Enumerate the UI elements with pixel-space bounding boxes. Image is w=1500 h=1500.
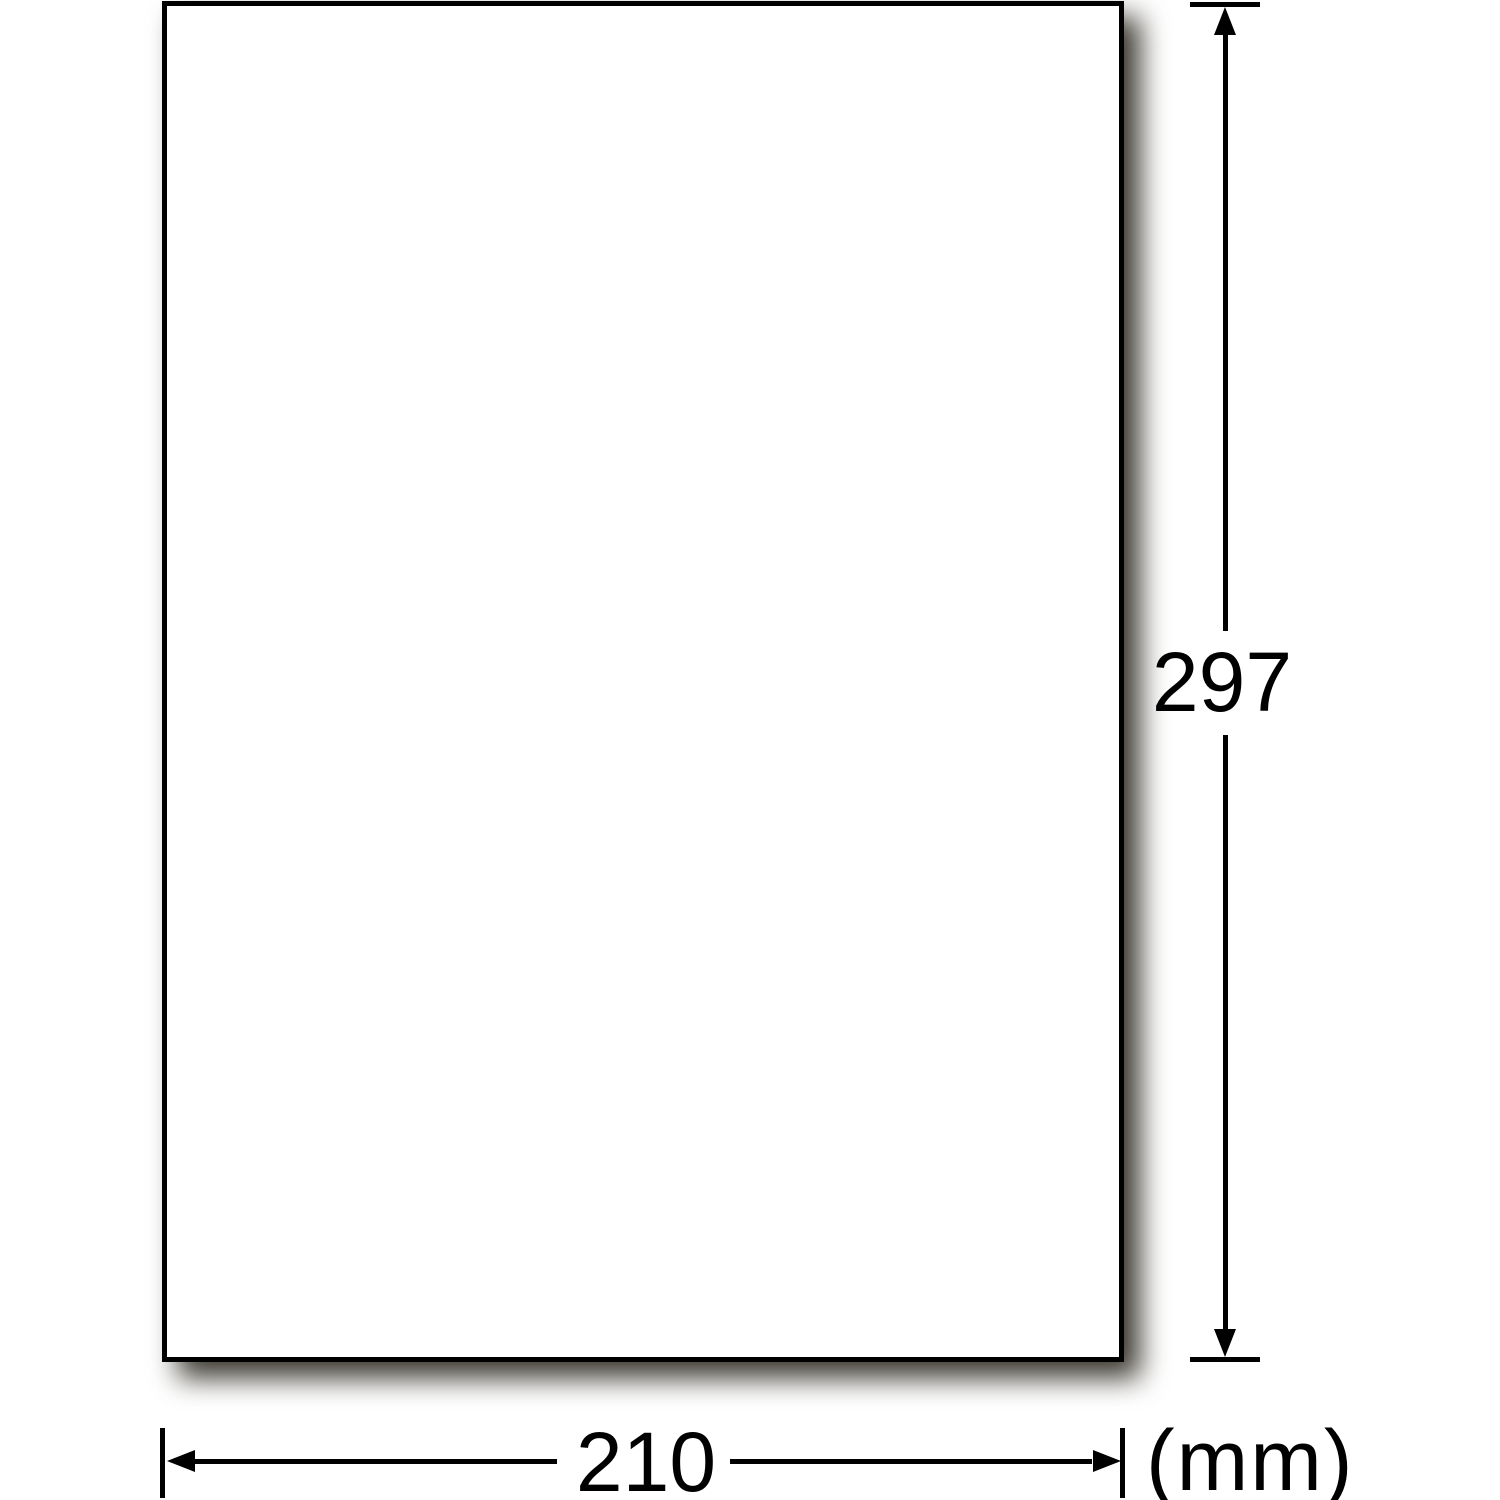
height-bottom-tick	[1190, 1357, 1260, 1362]
width-dim-label: 210	[576, 1420, 716, 1500]
right-arrowhead-icon	[1093, 1450, 1121, 1472]
width-dim-line-right	[730, 1459, 1092, 1464]
height-dim-line-lower	[1223, 735, 1228, 1330]
width-left-tick	[160, 1428, 165, 1498]
height-dim-line-upper	[1223, 30, 1228, 631]
width-right-tick	[1120, 1428, 1125, 1498]
diagram-canvas: 297 210 (mm)	[0, 0, 1500, 1500]
down-arrowhead-icon	[1214, 1329, 1236, 1357]
left-arrowhead-icon	[167, 1450, 195, 1472]
height-dim-label: 297	[1152, 640, 1292, 724]
width-dim-line-left	[195, 1459, 557, 1464]
unit-label: (mm)	[1146, 1418, 1355, 1500]
paper-sheet	[162, 1, 1124, 1362]
